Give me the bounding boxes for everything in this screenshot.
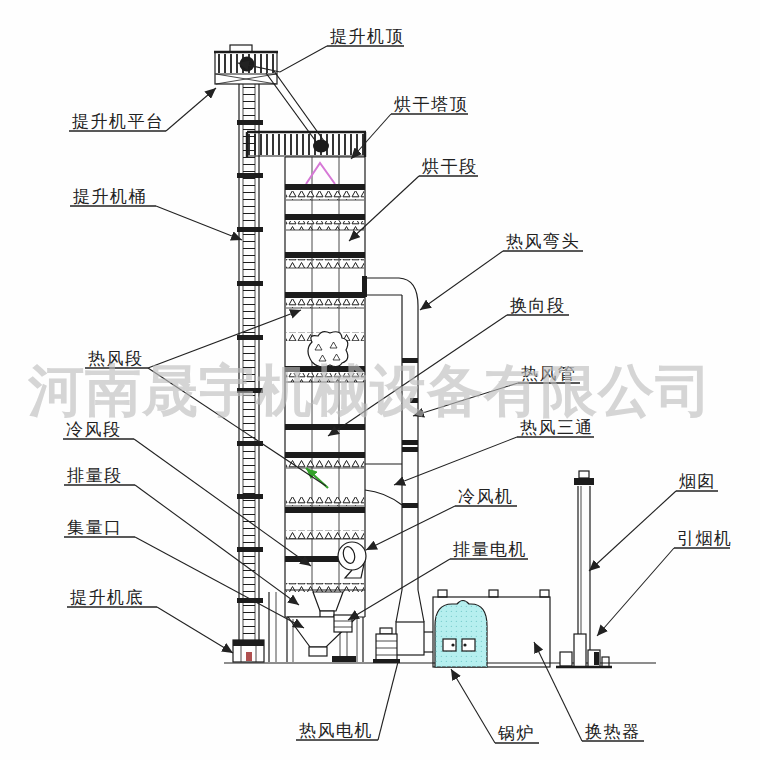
leader-line — [156, 206, 242, 240]
label-elevator-bottom: 提升机底 — [67, 588, 233, 653]
label-cold-air-section: 冷风段 — [63, 420, 311, 566]
leader-line — [148, 310, 301, 368]
magenta-mark — [306, 163, 335, 184]
label-elevator-top-text: 提升机顶 — [330, 27, 404, 46]
boot-mark — [246, 652, 252, 661]
label-collection-port-text: 集量口 — [67, 518, 123, 537]
label-hot-air-pipe: 热风管 — [413, 364, 580, 416]
label-drying-tower-top: 烘干塔顶 — [351, 95, 468, 159]
leader-line — [135, 537, 304, 628]
label-hot-air-motor-text: 热风电机 — [299, 721, 373, 740]
boiler-unit — [435, 601, 487, 668]
leader-line — [413, 383, 518, 416]
leader-line — [378, 662, 398, 740]
duct-bottom-transition — [396, 590, 433, 655]
deflector-rows — [286, 191, 364, 592]
label-drying-section-text: 烘干段 — [422, 157, 478, 176]
engineering-diagram: 提升机顶 提升机平台 提升机桶 烘干塔顶 烘干段 热风弯头 — [0, 0, 760, 760]
elevator-leg-rungs — [243, 86, 255, 640]
label-elevator-bucket-text: 提升机桶 — [73, 187, 147, 206]
leader-line — [366, 506, 455, 550]
leader-line — [157, 607, 233, 653]
label-drying-tower-top-text: 烘干塔顶 — [394, 95, 468, 114]
label-smoke-fan-text: 引烟机 — [677, 529, 733, 548]
leader-line — [589, 491, 676, 571]
label-chimney-text: 烟囱 — [679, 472, 716, 491]
diagram-canvas: 提升机顶 提升机平台 提升机桶 烘干塔顶 烘干段 热风弯头 — [0, 0, 760, 760]
discharge-chute — [313, 592, 343, 611]
label-hot-air-elbow-text: 热风弯头 — [506, 232, 580, 251]
smoke-fan-unit — [556, 634, 612, 667]
label-elevator-platform-text: 提升机平台 — [72, 112, 165, 131]
label-hot-air-tee: 热风三通 — [394, 418, 594, 485]
chute-inlet — [313, 140, 329, 153]
label-cold-air-fan-text: 冷风机 — [458, 487, 514, 506]
label-boiler: 锅炉 — [451, 669, 539, 743]
label-elevator-bucket: 提升机桶 — [70, 187, 242, 240]
label-elevator-bottom-text: 提升机底 — [70, 588, 144, 607]
leader-line — [135, 485, 299, 605]
label-discharge-motor-text: 排量电机 — [453, 540, 527, 559]
label-cold-air-section-text: 冷风段 — [66, 420, 122, 439]
leader-line — [420, 251, 503, 310]
leader-line — [597, 548, 674, 636]
chimney-unit — [574, 471, 594, 660]
hot-air-duct — [362, 276, 433, 655]
label-boiler-text: 锅炉 — [497, 724, 535, 743]
label-discharge-section-text: 排量段 — [67, 466, 123, 485]
annotations: 提升机顶 提升机平台 提升机桶 烘干塔顶 烘干段 热风弯头 — [63, 27, 733, 743]
label-hot-air-section-text: 热风段 — [88, 349, 144, 368]
grain-heap — [308, 332, 348, 367]
hopper-outlet — [309, 647, 327, 656]
drying-tower — [247, 132, 366, 662]
label-hot-air-motor: 热风电机 — [296, 662, 398, 740]
label-elevator-platform: 提升机平台 — [69, 88, 216, 131]
leader-line — [166, 88, 216, 131]
label-discharge-motor: 排量电机 — [348, 540, 528, 620]
label-reversing-section-text: 换向段 — [510, 296, 566, 315]
leader-line — [451, 669, 495, 743]
label-chimney: 烟囱 — [589, 472, 718, 571]
chimney-cap — [574, 478, 594, 485]
cold-air-fan-unit — [338, 542, 366, 578]
label-hot-air-tee-text: 热风三通 — [520, 418, 594, 437]
tower-top-railing — [248, 134, 365, 155]
label-drying-section: 烘干段 — [349, 157, 478, 241]
label-hot-air-pipe-text: 热风管 — [521, 364, 577, 383]
label-heat-exchanger-text: 换热器 — [585, 722, 641, 741]
